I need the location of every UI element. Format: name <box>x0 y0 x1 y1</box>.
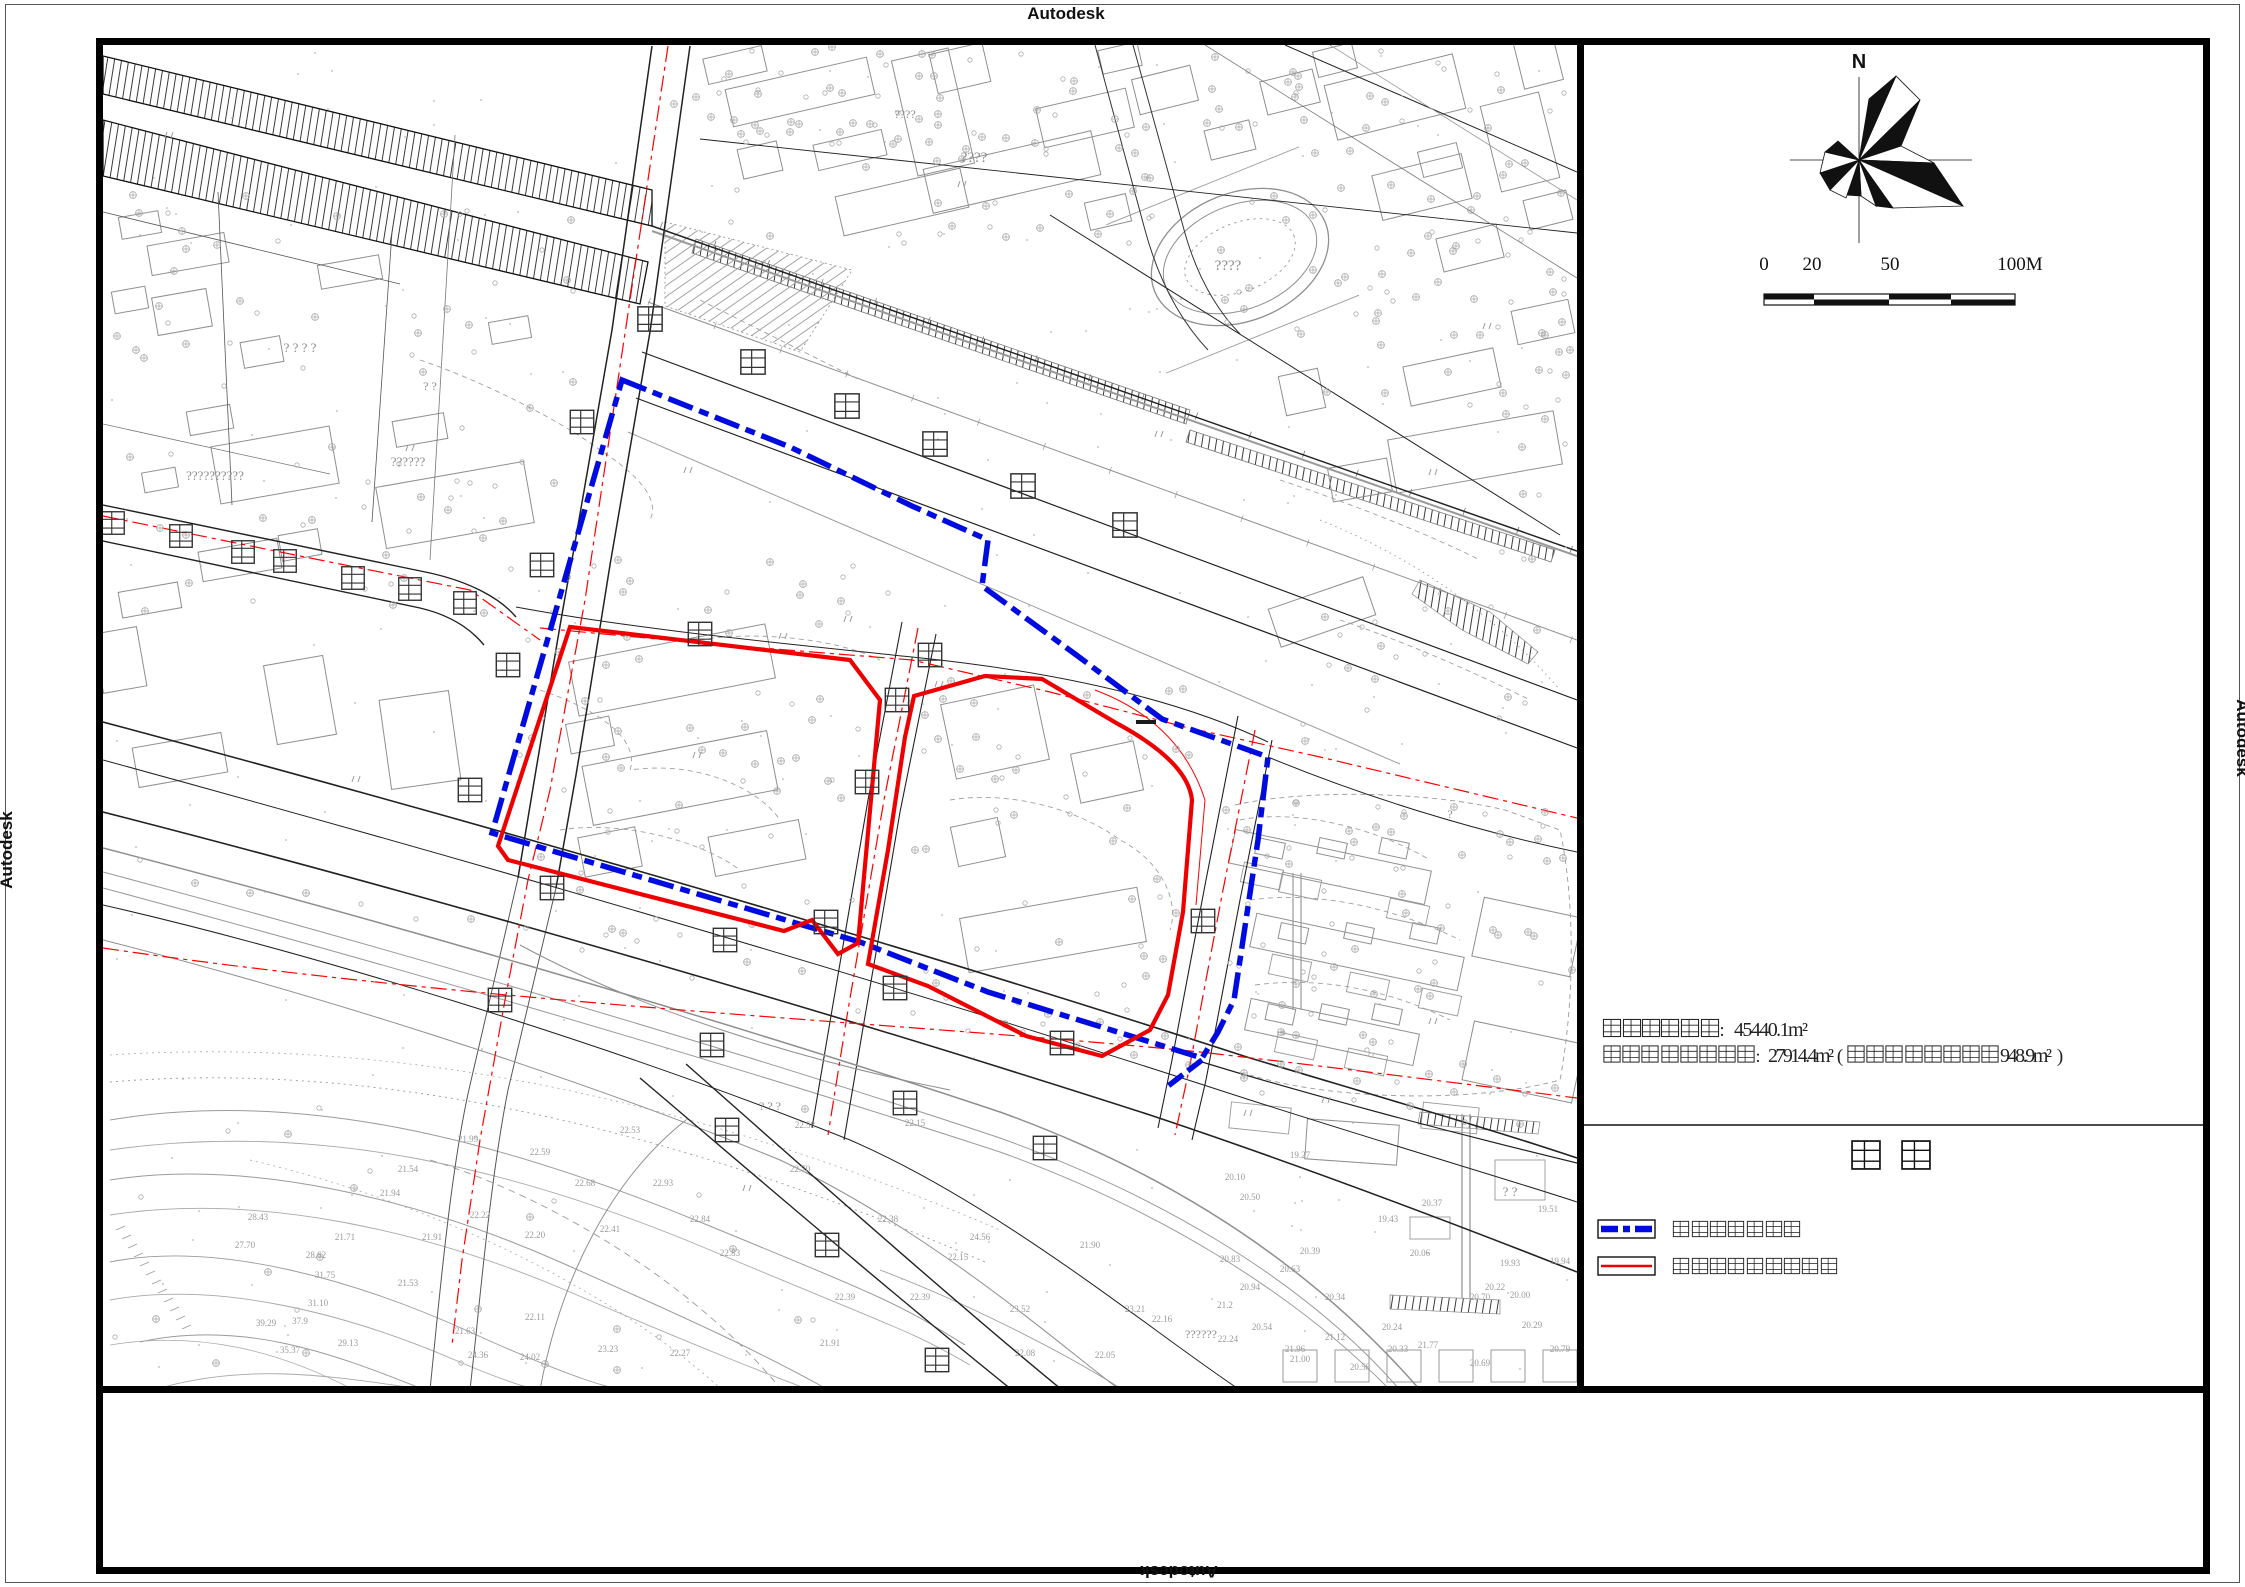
svg-text:22.22: 22.22 <box>470 1210 490 1220</box>
svg-text:21.91: 21.91 <box>820 1338 840 1348</box>
svg-text:20.63: 20.63 <box>1280 1264 1301 1274</box>
svg-text:? ? ?: ? ? ? <box>759 1099 781 1113</box>
svg-text:22.27: 22.27 <box>670 1348 691 1358</box>
svg-text:21.2: 21.2 <box>1217 1300 1233 1310</box>
svg-text::: : <box>1719 1020 1724 1041</box>
svg-text:24.56: 24.56 <box>970 1232 991 1242</box>
svg-text:20.83: 20.83 <box>1220 1254 1241 1264</box>
svg-text:50: 50 <box>1881 254 1900 275</box>
svg-text:20.06: 20.06 <box>1410 1248 1431 1258</box>
svg-text:19.27: 19.27 <box>1290 1150 1311 1160</box>
svg-text:21.54: 21.54 <box>398 1164 419 1174</box>
svg-text:28.62: 28.62 <box>306 1250 326 1260</box>
svg-text:(: ( <box>1837 1046 1843 1067</box>
svg-text:????: ???? <box>961 150 988 166</box>
svg-text:22.15: 22.15 <box>905 1118 926 1128</box>
svg-text:??????: ?????? <box>391 454 426 469</box>
svg-text:19.43: 19.43 <box>1378 1214 1399 1224</box>
svg-text:): ) <box>2057 1046 2063 1067</box>
svg-text:22.20: 22.20 <box>525 1230 546 1240</box>
svg-text:21.00: 21.00 <box>1290 1354 1311 1364</box>
svg-text:21.99: 21.99 <box>458 1134 479 1144</box>
svg-text:Autodesk: Autodesk <box>2233 699 2245 777</box>
svg-text:20: 20 <box>1803 254 1822 275</box>
svg-text:21.77: 21.77 <box>1418 1340 1439 1350</box>
svg-text:100M: 100M <box>1997 254 2043 275</box>
svg-text:20.50: 20.50 <box>1240 1192 1261 1202</box>
svg-text:21.71: 21.71 <box>335 1232 355 1242</box>
svg-text:22.38: 22.38 <box>878 1214 899 1224</box>
svg-text:19.51: 19.51 <box>1538 1204 1558 1214</box>
svg-text:24.36: 24.36 <box>468 1350 489 1360</box>
svg-text:39.29: 39.29 <box>256 1318 277 1328</box>
svg-text:31.75: 31.75 <box>315 1270 336 1280</box>
svg-text:21.96: 21.96 <box>1285 1344 1306 1354</box>
svg-text:22.08: 22.08 <box>1015 1348 1036 1358</box>
svg-text:22.05: 22.05 <box>1095 1350 1116 1360</box>
svg-text:22.83: 22.83 <box>720 1248 741 1258</box>
svg-text:24.02: 24.02 <box>520 1352 540 1362</box>
svg-text:20.10: 20.10 <box>1225 1172 1246 1182</box>
svg-text:22.53: 22.53 <box>620 1125 641 1135</box>
svg-text:22.16: 22.16 <box>1152 1314 1173 1324</box>
svg-text:22.84: 22.84 <box>690 1214 711 1224</box>
svg-text:22.41: 22.41 <box>600 1224 620 1234</box>
svg-text:20.37: 20.37 <box>1422 1198 1443 1208</box>
svg-text:22.15: 22.15 <box>948 1252 969 1262</box>
svg-text:35.37: 35.37 <box>280 1345 301 1355</box>
svg-text:????: ???? <box>894 107 915 121</box>
svg-text:20.58: 20.58 <box>1350 1362 1371 1372</box>
svg-text:? ? ? ?: ? ? ? ? <box>284 340 317 355</box>
svg-text:? ?: ? ? <box>423 379 437 393</box>
svg-text:??????: ?????? <box>1185 1327 1217 1341</box>
svg-text:29.13: 29.13 <box>338 1338 359 1348</box>
svg-text:23.21: 23.21 <box>1125 1304 1145 1314</box>
svg-text:22.39: 22.39 <box>835 1292 856 1302</box>
svg-text:21.94: 21.94 <box>380 1188 401 1198</box>
svg-text:37.9: 37.9 <box>292 1316 308 1326</box>
svg-text:20.34: 20.34 <box>1325 1292 1346 1302</box>
svg-text:22.39: 22.39 <box>910 1292 931 1302</box>
svg-text:22.70: 22.70 <box>790 1164 811 1174</box>
svg-text:Autodesk: Autodesk <box>1140 1562 1218 1581</box>
svg-text:?: ? <box>1447 807 1452 821</box>
svg-text:22.11: 22.11 <box>525 1312 545 1322</box>
svg-text:Autodesk: Autodesk <box>1027 4 1105 23</box>
svg-text:20.54: 20.54 <box>1252 1322 1273 1332</box>
svg-text:45440.1m²: 45440.1m² <box>1734 1019 1808 1041</box>
svg-text::: : <box>1755 1046 1760 1066</box>
svg-text:31.10: 31.10 <box>308 1298 329 1308</box>
svg-text:??????????: ?????????? <box>186 468 244 483</box>
svg-text:N: N <box>1852 51 1866 73</box>
svg-text:Autodesk: Autodesk <box>0 811 16 889</box>
svg-text:20.79: 20.79 <box>1550 1344 1571 1354</box>
svg-text:19.94: 19.94 <box>1550 1256 1571 1266</box>
svg-text:????: ???? <box>1215 258 1242 274</box>
svg-text:21.53: 21.53 <box>398 1278 419 1288</box>
svg-text:28.43: 28.43 <box>248 1212 269 1222</box>
svg-text:20.70: 20.70 <box>1470 1292 1491 1302</box>
svg-text:20.94: 20.94 <box>1240 1282 1261 1292</box>
svg-text:22.93: 22.93 <box>653 1178 674 1188</box>
svg-text:20.00: 20.00 <box>1510 1290 1531 1300</box>
svg-text:20.69: 20.69 <box>1470 1358 1491 1368</box>
svg-text:20.22: 20.22 <box>1485 1282 1505 1292</box>
svg-text:21.63: 21.63 <box>455 1326 476 1336</box>
svg-text:20.33: 20.33 <box>1388 1344 1409 1354</box>
svg-text:27914.4m²: 27914.4m² <box>1768 1045 1834 1067</box>
svg-text:21.90: 21.90 <box>1080 1240 1101 1250</box>
svg-text:20.39: 20.39 <box>1300 1246 1321 1256</box>
svg-text:22.24: 22.24 <box>1218 1334 1239 1344</box>
svg-text:0: 0 <box>1759 254 1769 275</box>
svg-text:20.24: 20.24 <box>1382 1322 1403 1332</box>
svg-text:? ?: ? ? <box>1503 1184 1518 1199</box>
svg-text:21.91: 21.91 <box>422 1232 442 1242</box>
svg-text:23.52: 23.52 <box>1010 1304 1030 1314</box>
svg-text:19.93: 19.93 <box>1500 1258 1521 1268</box>
svg-text:21.12: 21.12 <box>1325 1332 1345 1342</box>
svg-text:23.23: 23.23 <box>598 1344 619 1354</box>
svg-text:20.29: 20.29 <box>1522 1320 1543 1330</box>
svg-text:22.59: 22.59 <box>530 1147 551 1157</box>
svg-text:22.68: 22.68 <box>575 1178 596 1188</box>
svg-text:948.9m²: 948.9m² <box>2000 1045 2052 1067</box>
svg-text:22.58: 22.58 <box>795 1120 816 1130</box>
svg-text:27.70: 27.70 <box>235 1240 256 1250</box>
